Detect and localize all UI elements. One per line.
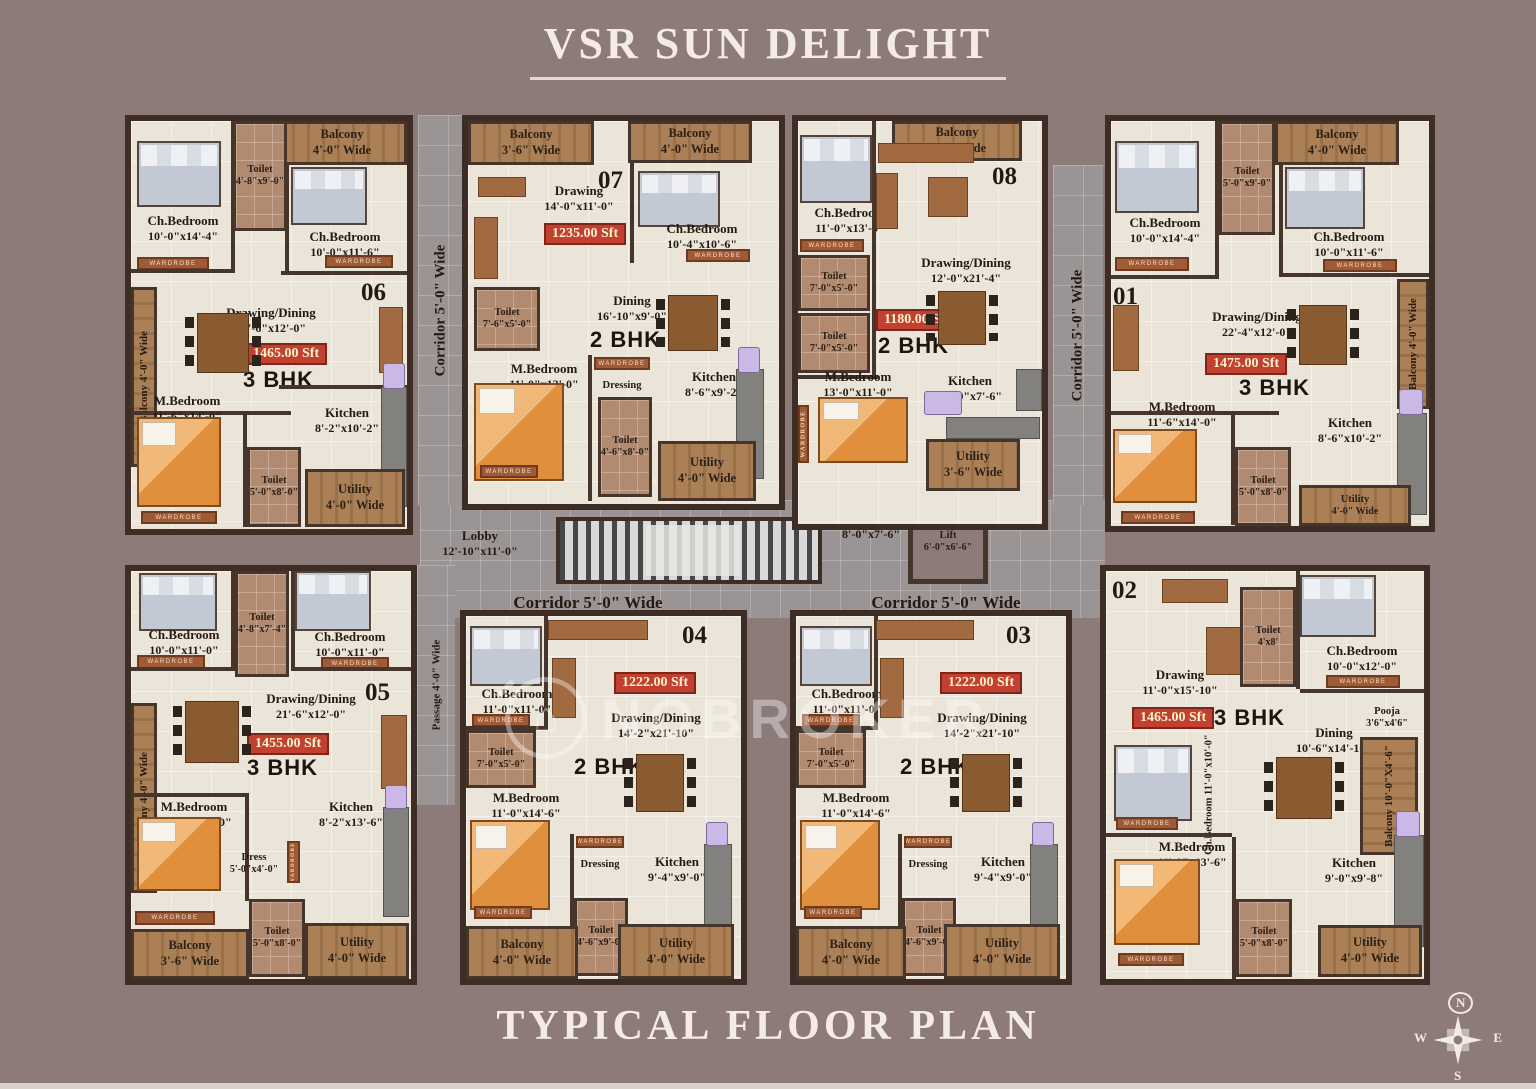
sofa	[876, 620, 974, 640]
unit-03-dressing-label: Dressing	[902, 858, 954, 871]
wall	[1106, 833, 1232, 837]
room-label: Utility3'-6" Wide	[944, 449, 1002, 480]
area-badge: 1455.00 Sft	[247, 733, 329, 755]
bed	[638, 171, 720, 227]
room-name: Drawing/Dining	[896, 255, 1036, 271]
room-label: Utility4'-0" Wide	[678, 455, 736, 486]
unit-02-chbed1-label: Ch.Bedroom10'-0"x12'-0"	[1302, 643, 1422, 674]
kitchen-counter	[946, 417, 1040, 439]
room-name: Drawing	[1118, 667, 1242, 683]
room-label: Toilet4'-8"x9'-0"	[236, 163, 284, 189]
room-dim: 10'-0"X4'-6"	[1383, 745, 1395, 806]
area-badge: 1235.00 Sft	[544, 223, 626, 245]
unit-02-chbed2-label: Ch.Bedroom 11'-0"x10'-0"	[1192, 753, 1226, 837]
unit-08-toilet2: Toilet7'-0"x5'-0"	[798, 313, 870, 373]
bed	[470, 820, 550, 910]
sofa	[876, 173, 898, 229]
room-dim: 10'-0"x14'-4"	[1111, 231, 1219, 246]
room-name: Kitchen	[914, 373, 1026, 389]
bed	[295, 571, 371, 631]
room-label: Toilet4'-6"x8'-0"	[601, 434, 649, 460]
footer-title-text: TYPICAL FLOOR PLAN	[496, 1002, 1039, 1050]
bed	[800, 820, 880, 910]
unit-03: 03 Ch.Bedroom11'-0"x11'-0" WARDROBE Toil…	[790, 610, 1072, 985]
wardrobe-strip: WARDROBE	[798, 405, 809, 463]
unit-02-drawing-label: Drawing11'-0"x15'-10"	[1118, 667, 1242, 698]
wall	[588, 355, 592, 501]
room-name: Balcony	[822, 937, 880, 953]
unit-03-mbed-label: M.Bedroom11'-0"x14'-6"	[800, 790, 912, 821]
wardrobe-strip: WARDROBE	[594, 357, 650, 370]
bed	[800, 135, 872, 203]
room-dim: 7'-0"x5'-0"	[810, 343, 858, 356]
room-name: Utility	[326, 482, 384, 498]
room-name: Toilet	[238, 611, 286, 624]
room-dim: 7'-0"x5'-0"	[810, 283, 858, 296]
room-name: Utility	[944, 449, 1002, 465]
sofa	[1162, 579, 1228, 603]
room-name: Toilet	[1239, 474, 1287, 487]
wall	[291, 571, 295, 669]
room-dim: 4'-0" Wide	[328, 951, 386, 967]
wall	[1300, 689, 1424, 693]
room-dim: 4'-0" Wide	[326, 498, 384, 514]
bed	[1113, 429, 1197, 503]
unit-01: Balcony4'-0" Wide Toilet5'-0"x9'-0" Ch.B…	[1105, 115, 1435, 532]
room-name: Balcony	[1407, 352, 1419, 390]
unit-07-chbed-label: Ch.Bedroom10'-4"x10'-6"	[632, 221, 772, 252]
bhk-label: 2 BHK	[590, 327, 661, 353]
room-name: Toilet	[250, 474, 298, 487]
room-dim: 5'-0"x8'-0"	[1239, 487, 1287, 500]
stair-landing	[646, 525, 740, 576]
room-name: M.Bedroom	[800, 790, 912, 806]
room-name: M.Bedroom	[804, 369, 912, 385]
lobby-dim: 12'-10"x11'-0"	[424, 544, 536, 559]
room-name: Utility	[647, 936, 705, 952]
room-label: Ch.Bedroom 11'-0"x10'-0"	[1202, 735, 1215, 856]
room-name: Ch.Bedroom	[1283, 229, 1415, 245]
unit-07-balcony1: Balcony3'-6" Wide	[468, 121, 594, 165]
unit-07: Balcony3'-6" Wide Balcony4'-0" Wide 07 D…	[462, 115, 785, 510]
staircase	[556, 517, 822, 584]
room-dim: 3'-6" Wide	[944, 465, 1002, 481]
corridor-right-label: Corridor 5'-0" Wide	[1070, 269, 1087, 401]
bed	[1115, 141, 1199, 213]
page-title: VSR SUN DELIGHT	[0, 18, 1536, 80]
sofa	[474, 217, 498, 279]
footer-title: TYPICAL FLOOR PLAN	[0, 1002, 1536, 1050]
room-dim: 11'-0"x14'-6"	[470, 806, 582, 821]
sink	[924, 391, 962, 415]
room-name: M.Bedroom	[470, 790, 582, 806]
unit-06: Balcony4'-0" Wide Toilet4'-8"x9'-0" Ch.B…	[125, 115, 413, 535]
room-name: Toilet	[810, 270, 858, 283]
room-label: Balcony4'-0" Wide	[822, 937, 880, 968]
sofa	[548, 620, 648, 640]
compass-star-icon	[1430, 1012, 1486, 1068]
sink	[738, 347, 760, 373]
unit-08-toilet1: Toilet7'-0"x5'-0"	[798, 255, 870, 311]
room-name: Ch.Bedroom	[1302, 643, 1422, 659]
wall	[1296, 571, 1300, 689]
wall	[1279, 273, 1429, 277]
room-label: Toilet5'-0"x9'-0"	[1223, 165, 1271, 191]
room-label: Toilet7'-6"x5'-0"	[483, 306, 531, 332]
passage-label: Passage 4'-0" Wide	[430, 640, 442, 731]
room-dim: 10'-0"x14'-4"	[131, 229, 235, 244]
wall	[1111, 275, 1219, 279]
room-dim: 5'-0"x8'-0"	[253, 938, 301, 951]
sink	[383, 363, 405, 389]
room-dim: 4'-8"x7'-4"	[238, 624, 286, 637]
wardrobe-strip: WARDROBE	[325, 255, 393, 268]
wardrobe-strip: WARDROBE	[686, 249, 750, 262]
room-name: Balcony	[161, 938, 219, 954]
room-label: Balcony4'-0" Wide	[661, 126, 719, 157]
room-label: Toilet4'x8'	[1255, 624, 1280, 650]
room-dim: 7'-6"x5'-0"	[483, 319, 531, 332]
room-label: Toilet5'-0"x8'-0"	[253, 925, 301, 951]
room-dim: 4'-0" Wide	[1341, 951, 1399, 967]
bed	[291, 167, 367, 225]
room-name: Utility	[678, 455, 736, 471]
room-name: Balcony	[928, 125, 986, 141]
room-dim: 4'-0" Wide	[678, 471, 736, 487]
room-dim: 10'-0"x12'-0"	[1302, 659, 1422, 674]
wall	[1215, 121, 1219, 277]
unit-06-utility: Utility4'-0" Wide	[305, 469, 405, 527]
room-name: Toilet	[810, 330, 858, 343]
room-name: Balcony	[493, 937, 551, 953]
lift-name: Lift	[924, 529, 972, 542]
dining-table	[668, 295, 718, 351]
unit-01-utility: Utility4'-0" Wide	[1299, 485, 1411, 526]
dining-table	[938, 291, 986, 345]
room-name: Ch.Bedroom	[632, 221, 772, 237]
room-name: Balcony	[502, 127, 560, 143]
wall	[630, 163, 634, 263]
room-dim: 4'-8"x9'-0"	[236, 176, 284, 189]
room-label: Utility4'-0" Wide	[647, 936, 705, 967]
wall	[131, 793, 249, 797]
room-name: Toilet	[601, 434, 649, 447]
corridor-left-label: Corridor 5'-0" Wide	[433, 244, 450, 376]
dining-table	[1276, 757, 1332, 819]
wardrobe-strip: WARDROBE	[287, 841, 300, 883]
nobroker-watermark: ⌂ NOBROKER	[505, 668, 1025, 768]
corridor-right: Corridor 5'-0" Wide	[1053, 165, 1103, 505]
room-label: Utility4'-0" Wide	[973, 936, 1031, 967]
unit-01-chbed2-label: Ch.Bedroom10'-0"x11'-6"	[1283, 229, 1415, 260]
bed	[1114, 745, 1192, 821]
compass-east: E	[1493, 1030, 1502, 1046]
dining-table	[197, 313, 249, 373]
room-name: Ch.Bedroom	[1111, 215, 1219, 231]
unit-03-balcony: Balcony4'-0" Wide	[796, 926, 906, 979]
room-dim: 4'-0" Wide	[1332, 506, 1379, 519]
compass-north: N	[1448, 992, 1473, 1014]
wall	[131, 667, 235, 671]
unit-07-utility: Utility4'-0" Wide	[658, 441, 756, 501]
room-dim: 4'-0" Wide	[661, 142, 719, 158]
wardrobe-strip: WARDROBE	[1118, 953, 1184, 966]
area-badge: 1465.00 Sft	[1132, 707, 1214, 729]
room-label: Balcony3'-6" Wide	[502, 127, 560, 158]
corridor-left: Corridor 5'-0" Wide	[418, 115, 464, 505]
unit-04-mbed-label: M.Bedroom11'-0"x14'-6"	[470, 790, 582, 821]
room-name: Drawing/Dining	[229, 691, 393, 707]
room-label: Toilet5'-0"x8'-0"	[1240, 925, 1288, 951]
unit-02-toilet2: Toilet5'-0"x8'-0"	[1236, 899, 1292, 977]
bhk-label: 3 BHK	[1239, 375, 1310, 401]
room-dim: 5'-0"x4'-0"	[223, 864, 285, 877]
room-name: Balcony	[661, 126, 719, 142]
wall	[872, 121, 876, 375]
room-dim: 11'-0"x14'-6"	[800, 806, 912, 821]
unit-08: Balcony3'-6" Wide 08 Ch.Bedroom11'-0"x13…	[792, 115, 1048, 530]
room-name: Pooja	[1356, 705, 1418, 718]
room-dim: 4'-0" Wide	[138, 331, 150, 382]
room-dim: 4'-6"x8'-0"	[601, 447, 649, 460]
wardrobe-strip: WARDROBE	[141, 511, 217, 524]
wardrobe-strip: WARDROBE	[480, 465, 538, 478]
room-dim: 4'-0" Wide	[1308, 143, 1366, 159]
room-name: Toilet	[483, 306, 531, 319]
wall	[131, 269, 235, 273]
wall	[231, 571, 235, 669]
unit-07-toilet1: Toilet7'-6"x5'-0"	[474, 287, 540, 351]
unit-05-toilet-top: Toilet4'-8"x7'-4"	[235, 571, 289, 677]
bottom-strip	[0, 1083, 1536, 1089]
room-label: Balcony4'-0" Wide	[493, 937, 551, 968]
room-label: Utility4'-0" Wide	[1332, 493, 1379, 519]
unit-01-mbed-label: M.Bedroom11'-6"x14'-0"	[1123, 399, 1241, 430]
room-label: Balcony3'-6" Wide	[161, 938, 219, 969]
bed	[1300, 575, 1376, 637]
sink	[706, 822, 728, 846]
bhk-label: 3 BHK	[247, 755, 318, 781]
wall	[231, 121, 235, 271]
unit-04-dressing-label: Dressing	[574, 858, 626, 871]
room-dim: 3'-6" Wide	[161, 954, 219, 970]
unit-07-toilet2: Toilet4'-6"x8'-0"	[598, 397, 652, 497]
sink	[1032, 822, 1054, 846]
room-name: Ch.Bedroom	[131, 213, 235, 229]
unit-04: 04 Ch.Bedroom11'-0"x11'-0" WARDROBE Toil…	[460, 610, 747, 985]
wall	[285, 165, 289, 273]
bed	[1285, 167, 1365, 229]
wardrobe-strip: WARDROBE	[135, 911, 215, 925]
room-name: Utility	[1332, 493, 1379, 506]
unit-05: Toilet4'-8"x7'-4" Ch.Bedroom10'-0"x11'-0…	[125, 565, 417, 985]
wardrobe-strip: WARDROBE	[1115, 257, 1189, 271]
room-name: M.Bedroom	[131, 393, 243, 409]
room-dim: 11'-0"x10'-0"	[1203, 735, 1214, 796]
room-name: M.Bedroom	[1130, 839, 1254, 855]
wardrobe-strip: WARDROBE	[1116, 817, 1178, 830]
sofa	[381, 715, 407, 789]
room-dim: 5'-0"x9'-0"	[1223, 178, 1271, 191]
room-dim: 3'-6" Wide	[502, 143, 560, 159]
room-label: Toilet7'-0"x5'-0"	[810, 330, 858, 356]
room-name: Toilet	[1223, 165, 1271, 178]
room-dim: 5'-0"x8'-0"	[1240, 938, 1288, 951]
unit-number: 02	[1112, 577, 1137, 605]
room-dim: 12'-0"x21'-4"	[896, 271, 1036, 286]
room-label: Toilet5'-0"x8'-0"	[250, 474, 298, 500]
room-dim: 4'-0" Wide	[822, 953, 880, 969]
room-label: Balcony4'-0" Wide	[313, 127, 371, 158]
room-name: M.Bedroom	[1123, 399, 1241, 415]
dining-table	[1299, 305, 1347, 365]
unit-01-balcony-top: Balcony4'-0" Wide	[1275, 121, 1399, 165]
unit-06-chbed1-label: Ch.Bedroom10'-0"x14'-4"	[131, 213, 235, 244]
bed	[137, 417, 221, 507]
unit-02: 02 Toilet4'x8' Ch.Bedroom10'-0"x12'-0" W…	[1100, 565, 1430, 985]
wardrobe-strip: WARDROBE	[1323, 259, 1397, 272]
room-dim: 8'-6"x10'-2"	[1289, 431, 1411, 446]
room-label: Utility4'-0" Wide	[1341, 935, 1399, 966]
unit-05-chbed2-label: Ch.Bedroom10'-0"x11'-0"	[291, 629, 409, 660]
unit-08-drawing-label: Drawing/Dining12'-0"x21'-4"	[896, 255, 1036, 286]
passage: Passage 4'-0" Wide	[417, 565, 455, 805]
unit-number: 04	[682, 622, 707, 650]
area-badge: 1475.00 Sft	[1205, 353, 1287, 375]
bhk-label: 3 BHK	[243, 367, 314, 393]
room-dim: 5'-0"x8'-0"	[250, 487, 298, 500]
compass-south: S	[1454, 1068, 1461, 1084]
unit-08-utility: Utility3'-6" Wide	[926, 439, 1020, 491]
room-label: Utility4'-0" Wide	[328, 935, 386, 966]
room-name: Toilet	[1240, 925, 1288, 938]
wall	[281, 271, 407, 275]
unit-01-toilet2: Toilet5'-0"x8'-0"	[1235, 447, 1291, 526]
unit-07-dressing-label: Dressing	[594, 379, 650, 392]
room-name: M.Bedroom	[135, 799, 253, 815]
room-label: Balcony4'-0" Wide	[1308, 127, 1366, 158]
unit-number: 03	[1006, 622, 1031, 650]
room-dim: 4'-0" Wide	[313, 143, 371, 159]
compass: N W E S	[1412, 992, 1504, 1084]
room-label: Balcony 4'-0" Wide	[1407, 298, 1419, 390]
room-name: Ch.Bedroom	[283, 229, 407, 245]
unit-05-toilet2: Toilet5'-0"x8'-0"	[249, 899, 305, 977]
room-name: Utility	[1341, 935, 1399, 951]
unit-01-toilet-top: Toilet5'-0"x9'-0"	[1219, 121, 1275, 235]
room-name: Utility	[973, 936, 1031, 952]
unit-06-toilet2: Toilet5'-0"x8'-0"	[247, 447, 301, 527]
unit-05-utility: Utility4'-0" Wide	[305, 923, 409, 979]
sofa	[1113, 305, 1139, 371]
unit-01-kitchen-label: Kitchen8'-6"x10'-2"	[1289, 415, 1411, 446]
sofa	[878, 143, 974, 163]
room-name: Toilet	[253, 925, 301, 938]
dining-table	[185, 701, 239, 763]
wardrobe-text: WARDROBE	[801, 410, 807, 457]
lobby-name: Lobby	[424, 528, 536, 544]
wardrobe-strip: WARDROBE	[576, 836, 624, 848]
nobroker-watermark-icon: ⌂	[505, 677, 587, 759]
coffee-table	[928, 177, 968, 217]
unit-number: 06	[361, 279, 386, 307]
room-label: Balcony 10'-0"X4'-6"	[1383, 745, 1395, 847]
room-dim: 11'-6"x14'-0"	[1123, 415, 1241, 430]
unit-05-dress-label: Dress5'-0"x4'-0"	[223, 851, 285, 877]
room-name: Toilet	[1255, 624, 1280, 637]
room-name: Toilet	[236, 163, 284, 176]
sink	[385, 785, 407, 809]
bed	[1114, 859, 1200, 945]
room-label: Toilet5'-0"x8'-0"	[1239, 474, 1287, 500]
sink	[1399, 389, 1423, 415]
wardrobe-text: WARDROBE	[291, 841, 296, 882]
unit-07-balcony2: Balcony4'-0" Wide	[628, 121, 752, 163]
stove	[1016, 369, 1042, 411]
bed	[139, 573, 217, 631]
unit-02-toilet1: Toilet4'x8'	[1240, 587, 1296, 687]
lift-label: Lift6'-0"x6'-6"	[924, 529, 972, 555]
sink	[1396, 811, 1420, 837]
unit-05-balcony-bottom: Balcony3'-6" Wide	[131, 929, 249, 979]
unit-06-toilet-top: Toilet4'-8"x9'-0"	[233, 121, 287, 231]
wardrobe-strip: WARDROBE	[1326, 675, 1400, 688]
unit-04-balcony: Balcony4'-0" Wide	[466, 926, 578, 979]
unit-01-chbed1-label: Ch.Bedroom10'-0"x14'-4"	[1111, 215, 1219, 246]
unit-08-mbed-label: M.Bedroom13'-0"x11'-0"	[804, 369, 912, 400]
unit-05-drawing-label: Drawing/Dining21'-6"x12'-0"	[229, 691, 393, 722]
sofa	[478, 177, 526, 197]
room-dim: 11'-0"x15'-10"	[1118, 683, 1242, 698]
room-dim: 4'x8'	[1255, 637, 1280, 650]
unit-04-utility: Utility4'-0" Wide	[618, 924, 734, 979]
lift-dim: 6'-0"x6'-6"	[924, 542, 972, 555]
watermark-text: NOBROKER	[601, 686, 992, 751]
wardrobe-strip: WARDROBE	[804, 906, 862, 919]
room-dim: 4'-0" Wide	[973, 952, 1031, 968]
room-dim: 4'-0" Wide	[493, 953, 551, 969]
compass-west: W	[1414, 1030, 1427, 1046]
unit-06-balcony-top: Balcony4'-0" Wide	[277, 121, 407, 165]
unit-05-chbed1-label: Ch.Bedroom10'-0"x11'-0"	[131, 627, 237, 658]
wardrobe-strip: WARDROBE	[1121, 511, 1195, 524]
room-label: Utility4'-0" Wide	[326, 482, 384, 513]
room-name: Balcony	[1308, 127, 1366, 143]
unit-02-utility: Utility4'-0" Wide	[1318, 925, 1422, 977]
kitchen-counter	[383, 807, 409, 917]
wardrobe-strip: WARDROBE	[474, 906, 532, 919]
wall	[1279, 165, 1283, 277]
room-name: Balcony	[313, 127, 371, 143]
room-dim: 4'-0" Wide	[647, 952, 705, 968]
unit-03-utility: Utility4'-0" Wide	[944, 924, 1060, 979]
room-label: Toilet4'-8"x7'-4"	[238, 611, 286, 637]
room-dim: 10'-0"x11'-6"	[1283, 245, 1415, 260]
wall	[291, 667, 411, 671]
floor-plan-page: VSR SUN DELIGHT Corridor 5'-0" Wide Corr…	[0, 0, 1536, 1089]
room-name: Dress	[223, 851, 285, 864]
bed	[137, 817, 221, 891]
lobby-main-label: Lobby12'-10"x11'-0"	[424, 528, 536, 559]
room-dim: 21'-6"x12'-0"	[229, 707, 393, 722]
wardrobe-strip: WARDROBE	[800, 239, 864, 252]
room-name: Ch.Bedroom	[291, 629, 409, 645]
bed	[137, 141, 221, 207]
wardrobe-strip: WARDROBE	[904, 836, 952, 848]
unit-number: 08	[992, 163, 1017, 191]
bed	[818, 397, 908, 463]
room-name: Ch.Bedroom	[131, 627, 237, 643]
